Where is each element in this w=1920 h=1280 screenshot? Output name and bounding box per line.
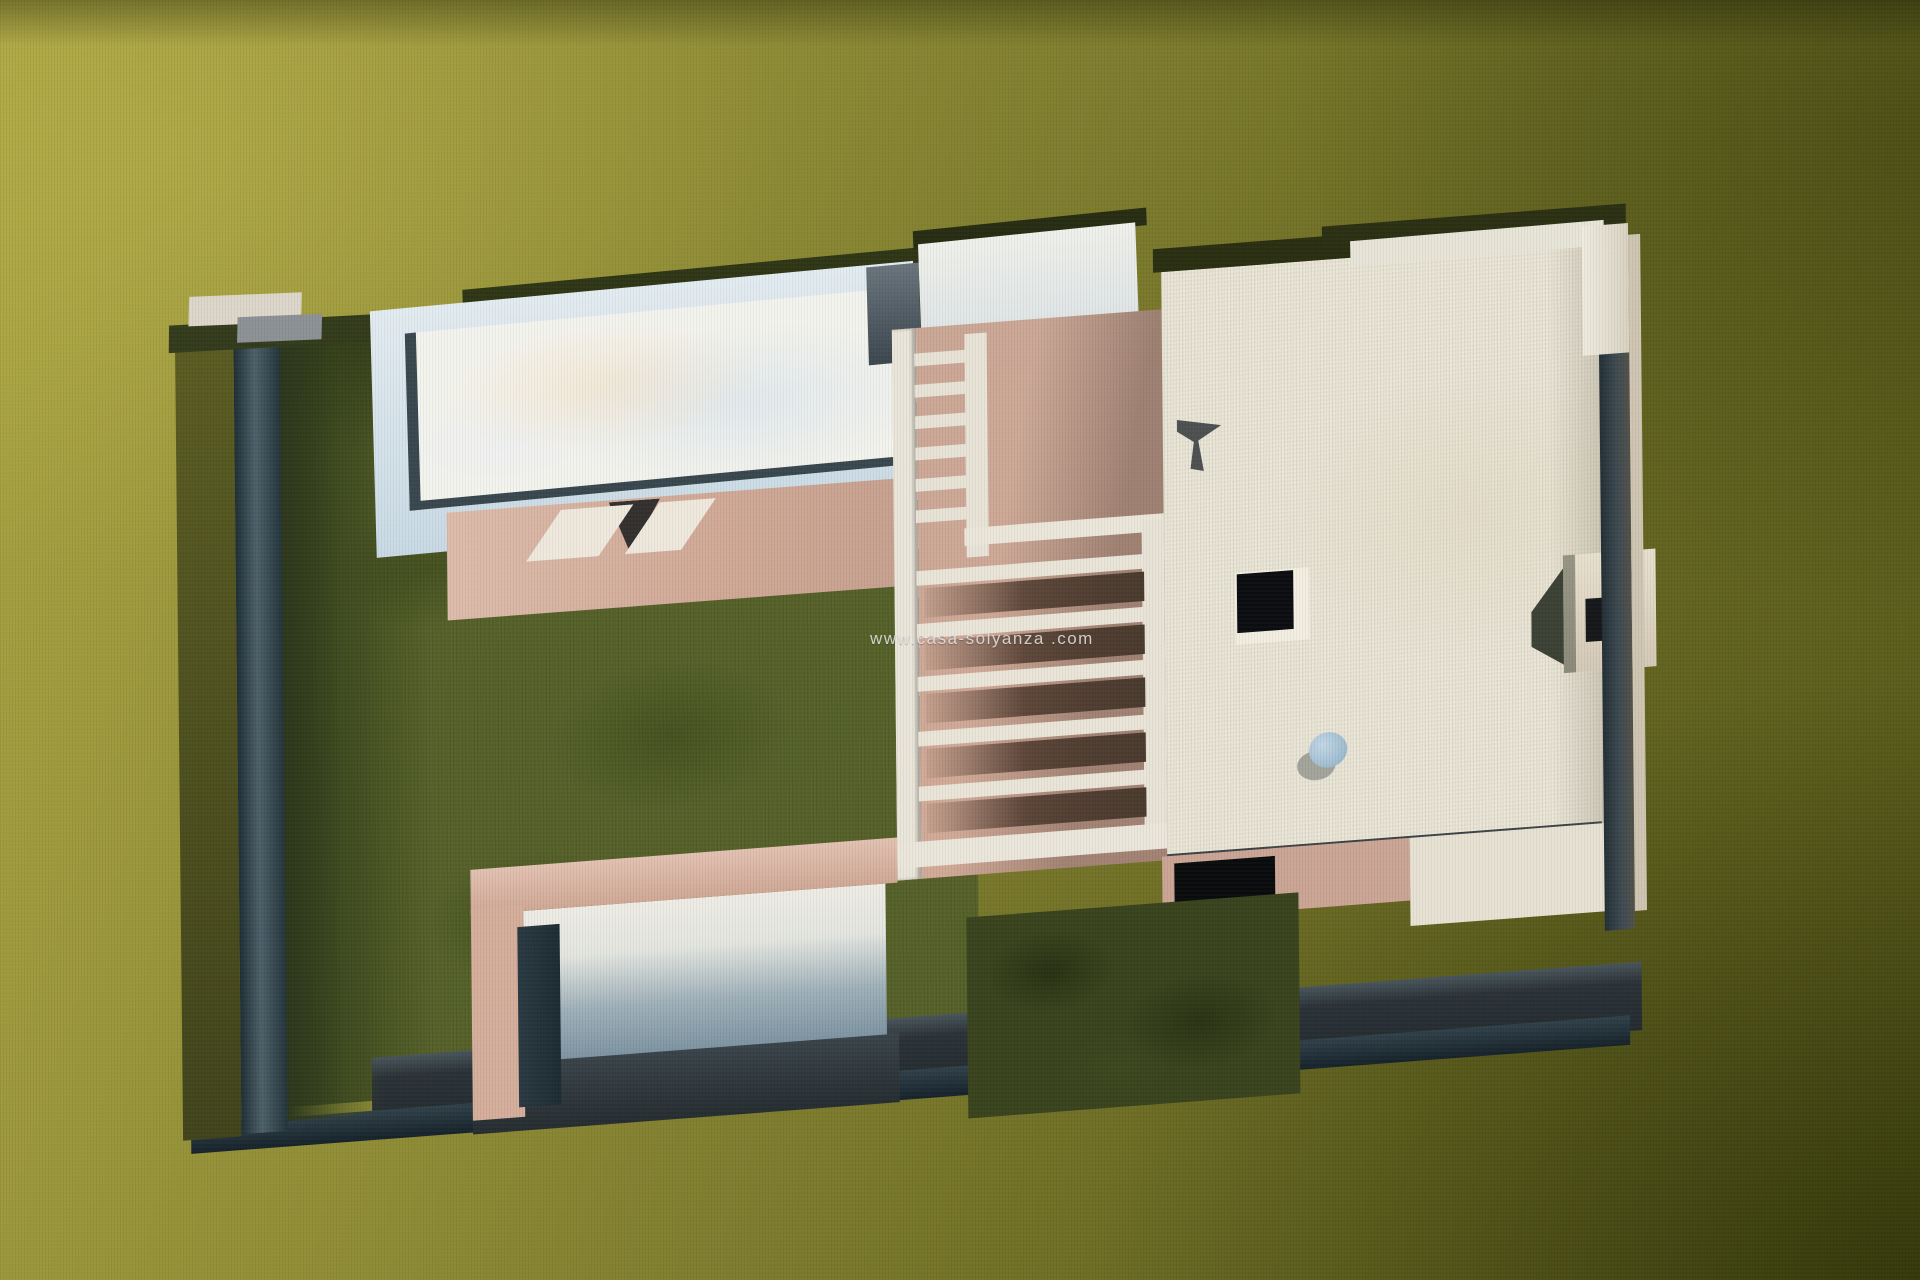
pergola-slat bbox=[915, 381, 969, 398]
pergola-slat bbox=[916, 506, 970, 523]
swimming-pool bbox=[405, 288, 904, 511]
lower-facade-wall-right bbox=[1410, 823, 1608, 926]
pergola-slat bbox=[915, 444, 969, 461]
skylight-glass bbox=[1237, 570, 1294, 633]
chimney-dome-icon bbox=[1309, 731, 1348, 769]
aerial-villa-render bbox=[175, 235, 1633, 1158]
perimeter-wall-left bbox=[233, 339, 287, 1134]
roof-flag-shadow bbox=[1177, 417, 1222, 473]
perimeter-wall-left-shadow bbox=[280, 338, 385, 1121]
garage-door-panel bbox=[523, 883, 887, 1061]
pergola-rail-mid bbox=[964, 513, 1163, 546]
balcony-side-shade bbox=[1563, 555, 1576, 674]
pergola bbox=[892, 309, 1167, 880]
garden-hedge bbox=[966, 892, 1300, 1118]
garage-pillar-shadow bbox=[517, 924, 561, 1108]
pergola-slat bbox=[916, 475, 970, 492]
pergola-rail-left bbox=[892, 328, 922, 881]
villa-roof-terrace bbox=[1161, 239, 1606, 860]
perimeter-wall-left-outer bbox=[175, 335, 242, 1141]
top-left-wall-step bbox=[237, 314, 322, 343]
pergola-slat bbox=[914, 350, 968, 367]
photo-top-vignette bbox=[0, 0, 1920, 46]
pergola-slat bbox=[915, 412, 969, 429]
corner-parapet-post bbox=[1582, 223, 1630, 356]
sun-lounger bbox=[526, 504, 633, 561]
garage-carport bbox=[470, 837, 900, 1163]
watermark-text: www.casa-solyanza .com bbox=[870, 629, 1094, 649]
skylight-icon bbox=[1235, 567, 1310, 645]
